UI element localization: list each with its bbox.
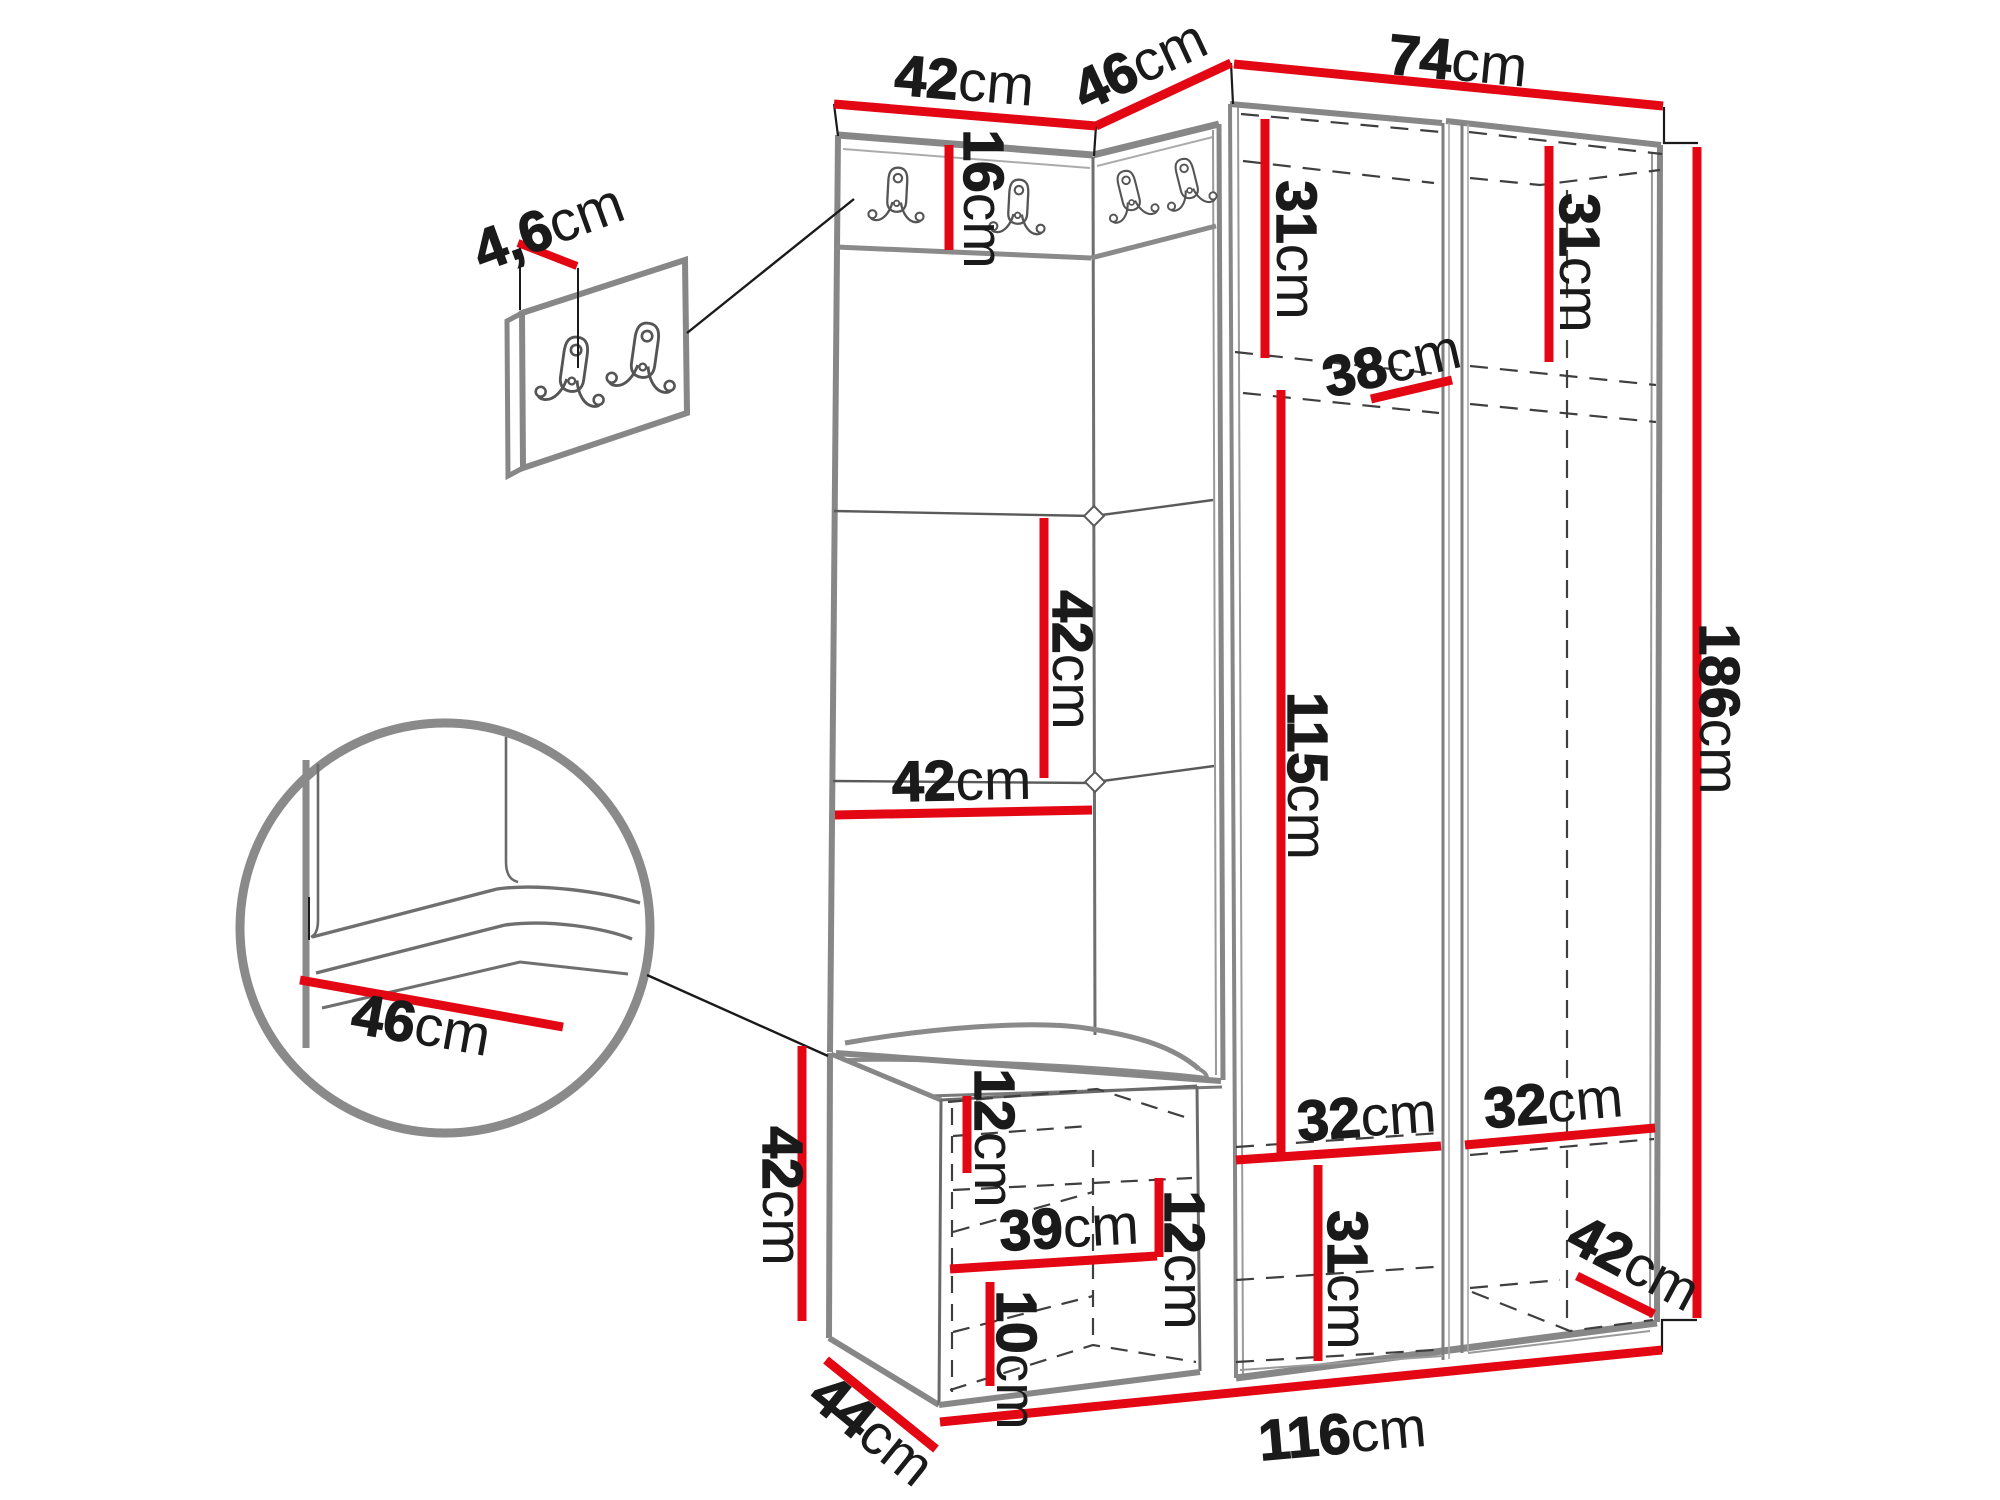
svg-text:42cm: 42cm — [750, 1126, 814, 1265]
svg-text:42cm: 42cm — [892, 43, 1036, 118]
svg-text:32cm: 32cm — [1481, 1065, 1625, 1141]
svg-text:31cm: 31cm — [1547, 193, 1611, 332]
svg-text:31cm: 31cm — [1315, 1210, 1379, 1349]
svg-text:31cm: 31cm — [1264, 180, 1328, 319]
svg-text:32cm: 32cm — [1295, 1080, 1439, 1154]
svg-text:16cm: 16cm — [951, 129, 1015, 268]
svg-text:39cm: 39cm — [998, 1192, 1141, 1263]
svg-text:12cm: 12cm — [962, 1068, 1026, 1207]
svg-text:42cm: 42cm — [891, 748, 1031, 814]
svg-text:12cm: 12cm — [1152, 1190, 1216, 1329]
svg-text:115cm: 115cm — [1275, 692, 1339, 860]
svg-text:10cm: 10cm — [984, 1290, 1048, 1429]
svg-text:186cm: 186cm — [1687, 623, 1751, 794]
svg-text:74cm: 74cm — [1385, 22, 1530, 99]
svg-text:42cm: 42cm — [1040, 590, 1104, 729]
